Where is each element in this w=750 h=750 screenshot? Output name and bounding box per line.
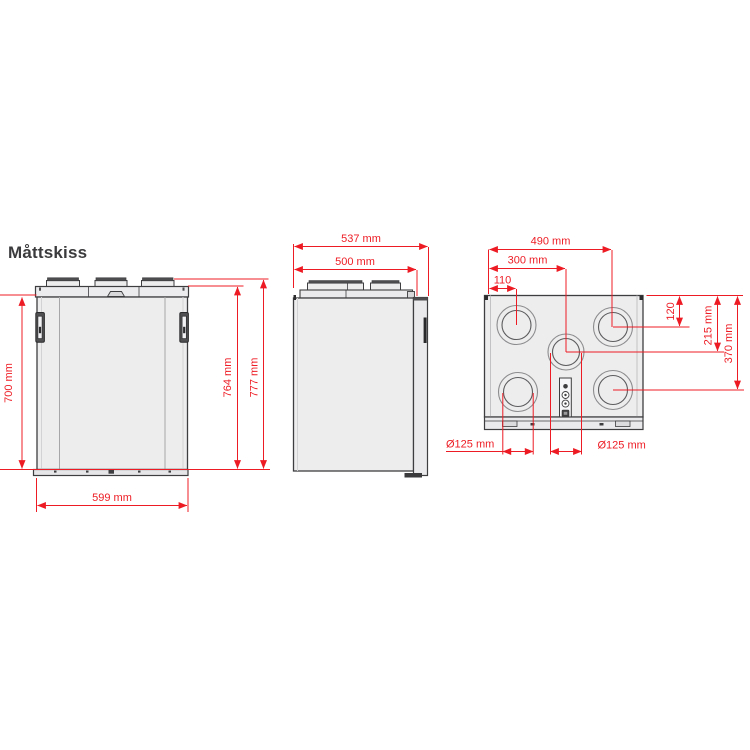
side-unit-body bbox=[294, 295, 414, 471]
dim-label-370: 370 mm bbox=[723, 324, 735, 364]
dim-label-490: 490 mm bbox=[531, 236, 571, 248]
top-view: 490 mm 300 mm 110 120 215 mm 370 mm Ø125… bbox=[446, 236, 744, 455]
dim-label-700: 700 mm bbox=[3, 363, 15, 403]
dim-label-300: 300 mm bbox=[508, 255, 548, 267]
front-top-plate bbox=[36, 287, 189, 298]
front-right-latch bbox=[180, 313, 189, 343]
front-left-latch bbox=[36, 313, 45, 343]
panel-led-icon bbox=[563, 384, 568, 389]
side-top-plate bbox=[300, 290, 415, 298]
dimension-drawing: 700 mm 764 mm 777 mm 599 mm bbox=[0, 0, 750, 750]
front-unit-body bbox=[37, 297, 188, 470]
dim-label-777: 777 mm bbox=[249, 358, 261, 398]
dim-label-215: 215 mm bbox=[703, 306, 715, 346]
dim-label-764: 764 mm bbox=[222, 358, 234, 398]
dim-label-537: 537 mm bbox=[341, 233, 381, 245]
dim-label-diameter-right: Ø125 mm bbox=[598, 440, 646, 452]
dim-label-500: 500 mm bbox=[335, 256, 375, 268]
front-base bbox=[34, 470, 189, 476]
side-foot bbox=[405, 473, 423, 478]
front-lift-handle bbox=[108, 292, 125, 297]
dim-label-120: 120 bbox=[665, 302, 677, 320]
side-latch bbox=[424, 318, 427, 344]
front-view: 700 mm 764 mm 777 mm 599 mm bbox=[0, 278, 270, 512]
side-duct-stubs bbox=[308, 281, 401, 290]
side-view: 537 mm 500 mm bbox=[294, 233, 429, 478]
dimension-sketch-page: Måttskiss bbox=[0, 0, 750, 750]
top-bottom-rail bbox=[485, 417, 644, 430]
top-control-panel bbox=[560, 378, 572, 419]
dim-label-599: 599 mm bbox=[92, 492, 132, 504]
dim-label-diameter-left: Ø125 mm bbox=[446, 439, 494, 451]
front-duct-stubs bbox=[47, 278, 175, 287]
dim-label-110: 110 bbox=[494, 275, 512, 287]
